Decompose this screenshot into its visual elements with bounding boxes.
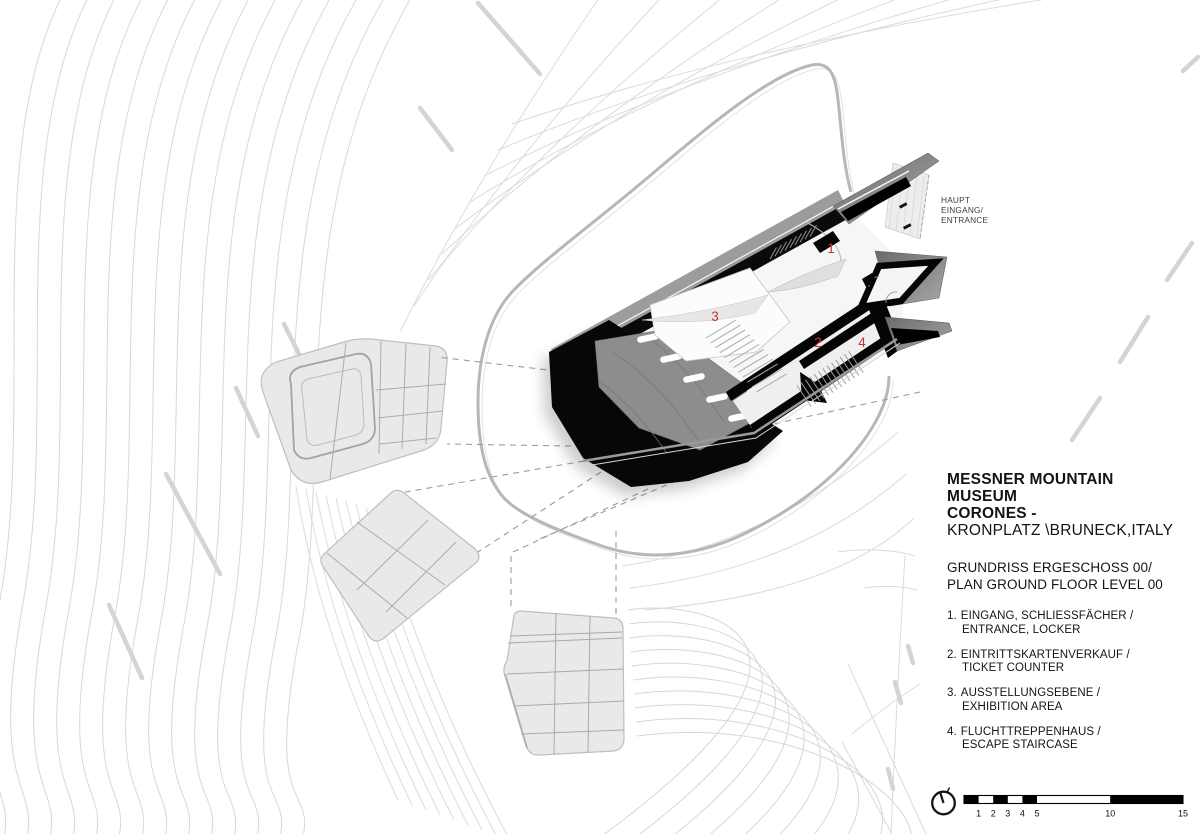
- room-marker-1: 1: [827, 241, 835, 256]
- room-marker-3: 3: [711, 309, 719, 324]
- trail-segment: [478, 3, 540, 74]
- contour-line: [126, 0, 228, 834]
- trail-segment: [236, 388, 258, 436]
- legend-item-1: 1.EINGANG, SCHLIESSFÄCHER / ENTRANCE, LO…: [947, 610, 1182, 637]
- main-entrance-label: HAUPT EINGANG/ ENTRANCE: [941, 195, 989, 225]
- contour-line: [11, 0, 93, 834]
- title-line-2: CORONES -: [947, 505, 1182, 522]
- scale-tick-label: 2: [991, 809, 996, 819]
- contour-line: [630, 474, 906, 588]
- contour-line: [414, 0, 670, 306]
- contour-line: [637, 732, 912, 834]
- projection-dashed-line: [400, 461, 584, 493]
- scale-tick-label: 15: [1178, 809, 1188, 819]
- legend-text: AUSSTELLUNGSEBENE /: [961, 687, 1100, 699]
- contour-line: [632, 663, 804, 834]
- subtitle-line-2: PLAN GROUND FLOOR LEVEL 00: [947, 577, 1182, 594]
- contour-line: [0, 0, 66, 834]
- contour-line: [149, 0, 255, 834]
- contour-line: [842, 742, 892, 834]
- contour-line: [34, 0, 120, 834]
- legend-number: 4.: [947, 726, 957, 738]
- legend-text-en: EXHIBITION AREA: [947, 701, 1182, 715]
- legend-item-2: 2.EINTRITTSKARTENVERKAUF / TICKET COUNTE…: [947, 649, 1182, 676]
- trail-segment: [284, 324, 300, 356]
- trail-segment: [888, 769, 893, 789]
- scale-tick-label: 3: [1005, 809, 1010, 819]
- scale-tick-label: 4: [1020, 809, 1025, 819]
- legend-text-en: ENTRANCE, LOCKER: [947, 624, 1182, 638]
- legend-text-en: TICKET COUNTER: [947, 662, 1182, 676]
- contour-line: [456, 0, 862, 228]
- entrance-label-line3: ENTRANCE: [941, 215, 989, 225]
- title-block: MESSNER MOUNTAIN MUSEUM CORONES - KRONPL…: [947, 471, 1182, 764]
- trail-segment: [1120, 317, 1148, 362]
- entrance-label-line2: EINGANG/: [941, 205, 984, 215]
- room-marker-2: 2: [814, 335, 822, 350]
- contour-line: [57, 0, 147, 834]
- project-title: MESSNER MOUNTAIN MUSEUM CORONES - KRONPL…: [947, 471, 1182, 539]
- structure-outline: [261, 339, 447, 484]
- legend-text: FLUCHTTREPPENHAUS /: [961, 726, 1101, 738]
- scale-tick-label: 5: [1034, 809, 1039, 819]
- site-plan-page: 1 2 3 4 HAUPT EINGANG/ ENTRANCE 1 2 3 4 …: [0, 0, 1200, 834]
- structure-outline: [321, 490, 479, 641]
- contour-line: [636, 719, 883, 834]
- scale-tick-label: 1: [976, 809, 981, 819]
- room-marker-4: 4: [858, 335, 866, 350]
- legend-text: EINTRITTSKARTENVERKAUF /: [961, 649, 1130, 661]
- contour-line: [838, 550, 915, 556]
- scale-bar: 1 2 3 4 5 10 15: [964, 796, 1188, 819]
- trail-segment: [420, 108, 452, 150]
- title-line-3: KRONPLATZ \BRUNECK,ITALY: [947, 522, 1182, 539]
- trail-segment: [1183, 57, 1198, 71]
- north-arrow-notch: [948, 788, 950, 792]
- contour-line: [428, 0, 734, 280]
- contour-line: [864, 586, 917, 590]
- projection-dashed-line: [447, 444, 571, 446]
- subtitle-line-1: GRUNDRISS ERGESCHOSS 00/: [947, 560, 1182, 577]
- projection-dashed-line: [511, 489, 648, 553]
- scale-bar-labels: 1 2 3 4 5 10 15: [976, 809, 1188, 819]
- contour-line: [852, 684, 920, 734]
- trail-segment: [109, 605, 142, 678]
- entrance-label-line1: HAUPT: [941, 195, 970, 205]
- contour-line: [80, 0, 174, 834]
- contour-line: [848, 664, 926, 834]
- contour-line: [634, 691, 838, 834]
- drawing-subtitle: GRUNDRISS ERGESCHOSS 00/ PLAN GROUND FLO…: [947, 560, 1182, 593]
- contour-line: [470, 0, 926, 202]
- legend-item-4: 4.FLUCHTTREPPENHAUS / ESCAPE STAIRCASE: [947, 726, 1182, 753]
- legend-item-3: 3.AUSSTELLUNGSEBENE / EXHIBITION AREA: [947, 687, 1182, 714]
- contour-line: [624, 622, 762, 834]
- scale-tick-label: 10: [1105, 809, 1115, 819]
- trail-segment: [1072, 398, 1100, 440]
- legend-text: EINGANG, SCHLIESSFÄCHER /: [961, 610, 1133, 622]
- title-line-1: MESSNER MOUNTAIN MUSEUM: [947, 471, 1182, 505]
- museum-building: [542, 153, 952, 496]
- lower-structure-b: [321, 490, 479, 641]
- trail-segment: [908, 646, 913, 663]
- north-arrow: [932, 788, 955, 815]
- lower-structure-c: [504, 611, 624, 755]
- legend-number: 3.: [947, 687, 957, 699]
- room-legend: 1.EINGANG, SCHLIESSFÄCHER / ENTRANCE, LO…: [947, 610, 1182, 753]
- legend-text-en: ESCAPE STAIRCASE: [947, 739, 1182, 753]
- contour-line: [442, 0, 798, 254]
- lower-structure-a: [261, 339, 447, 484]
- legend-number: 2.: [947, 649, 957, 661]
- trail-segment: [1167, 243, 1192, 280]
- contour-line: [498, 0, 1054, 150]
- projection-dashed-line: [437, 357, 557, 371]
- contour-line: [644, 518, 914, 610]
- legend-number: 1.: [947, 610, 957, 622]
- contour-line: [103, 0, 201, 834]
